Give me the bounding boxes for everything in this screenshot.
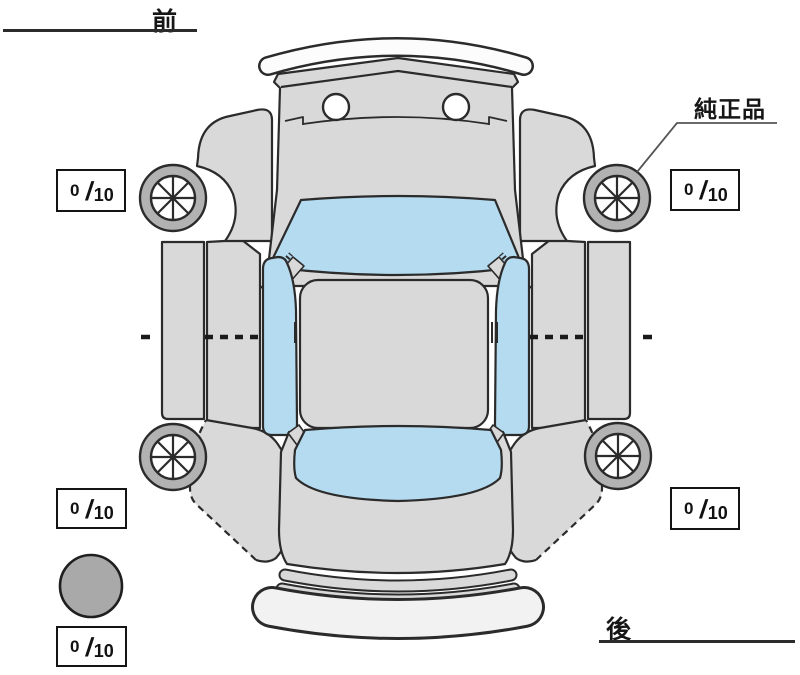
left-front-fender [197,109,272,241]
rear-left-wheel-icon [140,424,206,490]
rear-label-underline [599,640,795,643]
genuine-part-leader-line [637,123,777,172]
tread-box-rear-left: 0 / 10 [56,488,127,529]
headlight-left-icon [323,94,349,120]
front-left-wheel-icon [140,165,206,231]
tread-max: 10 [94,503,114,524]
rear-right-wheel-icon [585,423,651,489]
tread-box-rear-right: 0 / 10 [670,487,740,530]
left-rear-quarter [190,420,293,562]
rear-window [294,426,502,501]
car-top-view-illustration [0,0,800,675]
left-inner-door-panel [207,240,260,428]
tread-max: 10 [94,185,114,206]
roof [300,280,488,428]
genuine-part-label: 純正品 [694,90,766,124]
tread-value: 0 [70,181,79,201]
headlight-right-icon [443,94,469,120]
right-inner-door-panel [532,240,585,428]
spare-tire-icon [60,555,122,617]
right-front-fender [520,109,595,241]
tread-value: 0 [70,637,79,657]
center-body [261,47,531,619]
vehicle-condition-diagram: 前 後 純正品 0 / 10 0 / 10 0 / 10 0 / 10 0 / … [0,0,800,675]
right-side-windows [495,257,529,435]
left-side-windows [263,257,297,435]
tread-max: 10 [708,503,728,524]
tread-max: 10 [94,641,114,662]
tread-value: 0 [684,180,693,200]
tread-box-spare: 0 / 10 [56,626,127,667]
tread-value: 0 [684,499,693,519]
front-label: 前 [152,2,177,38]
tread-box-front-left: 0 / 10 [56,169,126,212]
windshield [272,196,519,275]
right-outer-door-panel [588,242,630,419]
left-outer-door-panel [162,242,204,419]
tread-max: 10 [708,185,728,206]
rear-bumper-fill [272,607,524,619]
b-pillar-right-marks [492,322,497,343]
tread-box-front-right: 0 / 10 [670,169,740,211]
tread-value: 0 [70,499,79,519]
front-right-wheel-icon [584,165,650,231]
b-pillar-left-marks [295,322,300,343]
right-rear-quarter [499,420,602,562]
front-label-underline [3,29,197,32]
